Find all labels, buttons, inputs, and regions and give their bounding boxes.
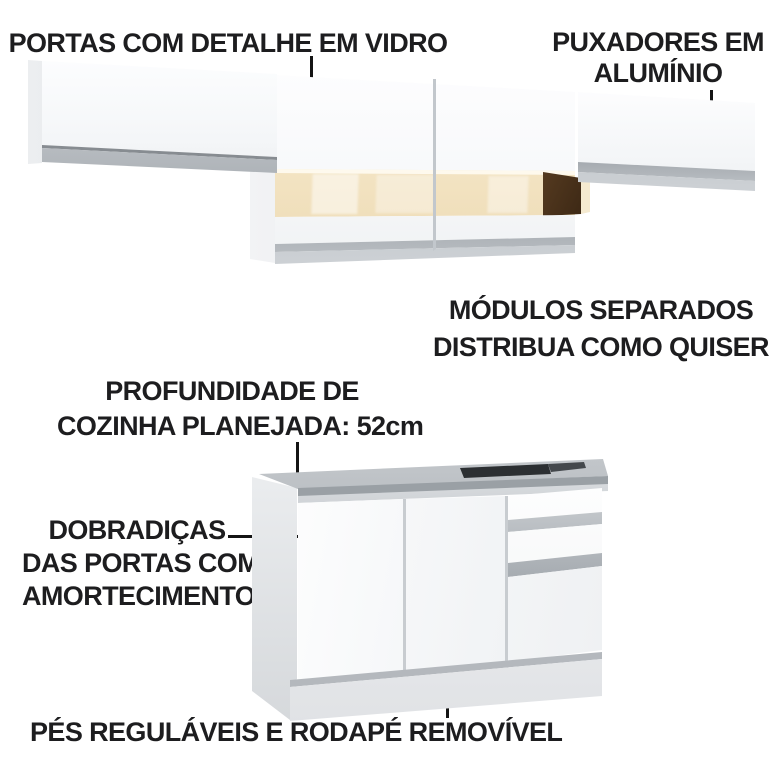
annotation-line: PUXADORES EM xyxy=(540,27,776,58)
annotation-glass-doors: PORTAS COM DETALHE EM VIDRO xyxy=(8,27,448,59)
annotation-line: DOBRADIÇAS xyxy=(22,514,252,547)
annotation-hinges: DOBRADIÇAS DAS PORTAS COM AMORTECIMENTO xyxy=(22,514,252,613)
annotation-line: AMORTECIMENTO xyxy=(22,580,252,613)
glass-reflection xyxy=(311,174,358,214)
wall-cabinet-left xyxy=(28,60,277,175)
kitchen-cabinet-infographic: PORTAS COM DETALHE EM VIDRO PUXADORES EM… xyxy=(0,0,780,780)
annotation-separate-modules: MÓDULOS SEPARADOS DISTRIBUA COMO QUISER xyxy=(425,292,777,366)
wall-cabinet-center-module xyxy=(250,73,590,278)
annotation-line: PROFUNDIDADE DE xyxy=(57,374,407,409)
glass-reflection xyxy=(487,176,528,213)
glass-reflection xyxy=(375,175,434,213)
annotation-line: DAS PORTAS COM xyxy=(22,547,252,580)
wall-cabinet-right xyxy=(578,90,755,192)
annotation-depth: PROFUNDIDADE DE COZINHA PLANEJADA: 52cm xyxy=(57,374,407,444)
annotation-line: PORTAS COM DETALHE EM VIDRO xyxy=(8,27,448,59)
annotation-line: DISTRIBUA COMO QUISER xyxy=(425,329,777,366)
base-cabinet xyxy=(250,458,615,728)
annotation-line: COZINHA PLANEJADA: 52cm xyxy=(57,409,407,444)
annotation-line: MÓDULOS SEPARADOS xyxy=(425,292,777,329)
